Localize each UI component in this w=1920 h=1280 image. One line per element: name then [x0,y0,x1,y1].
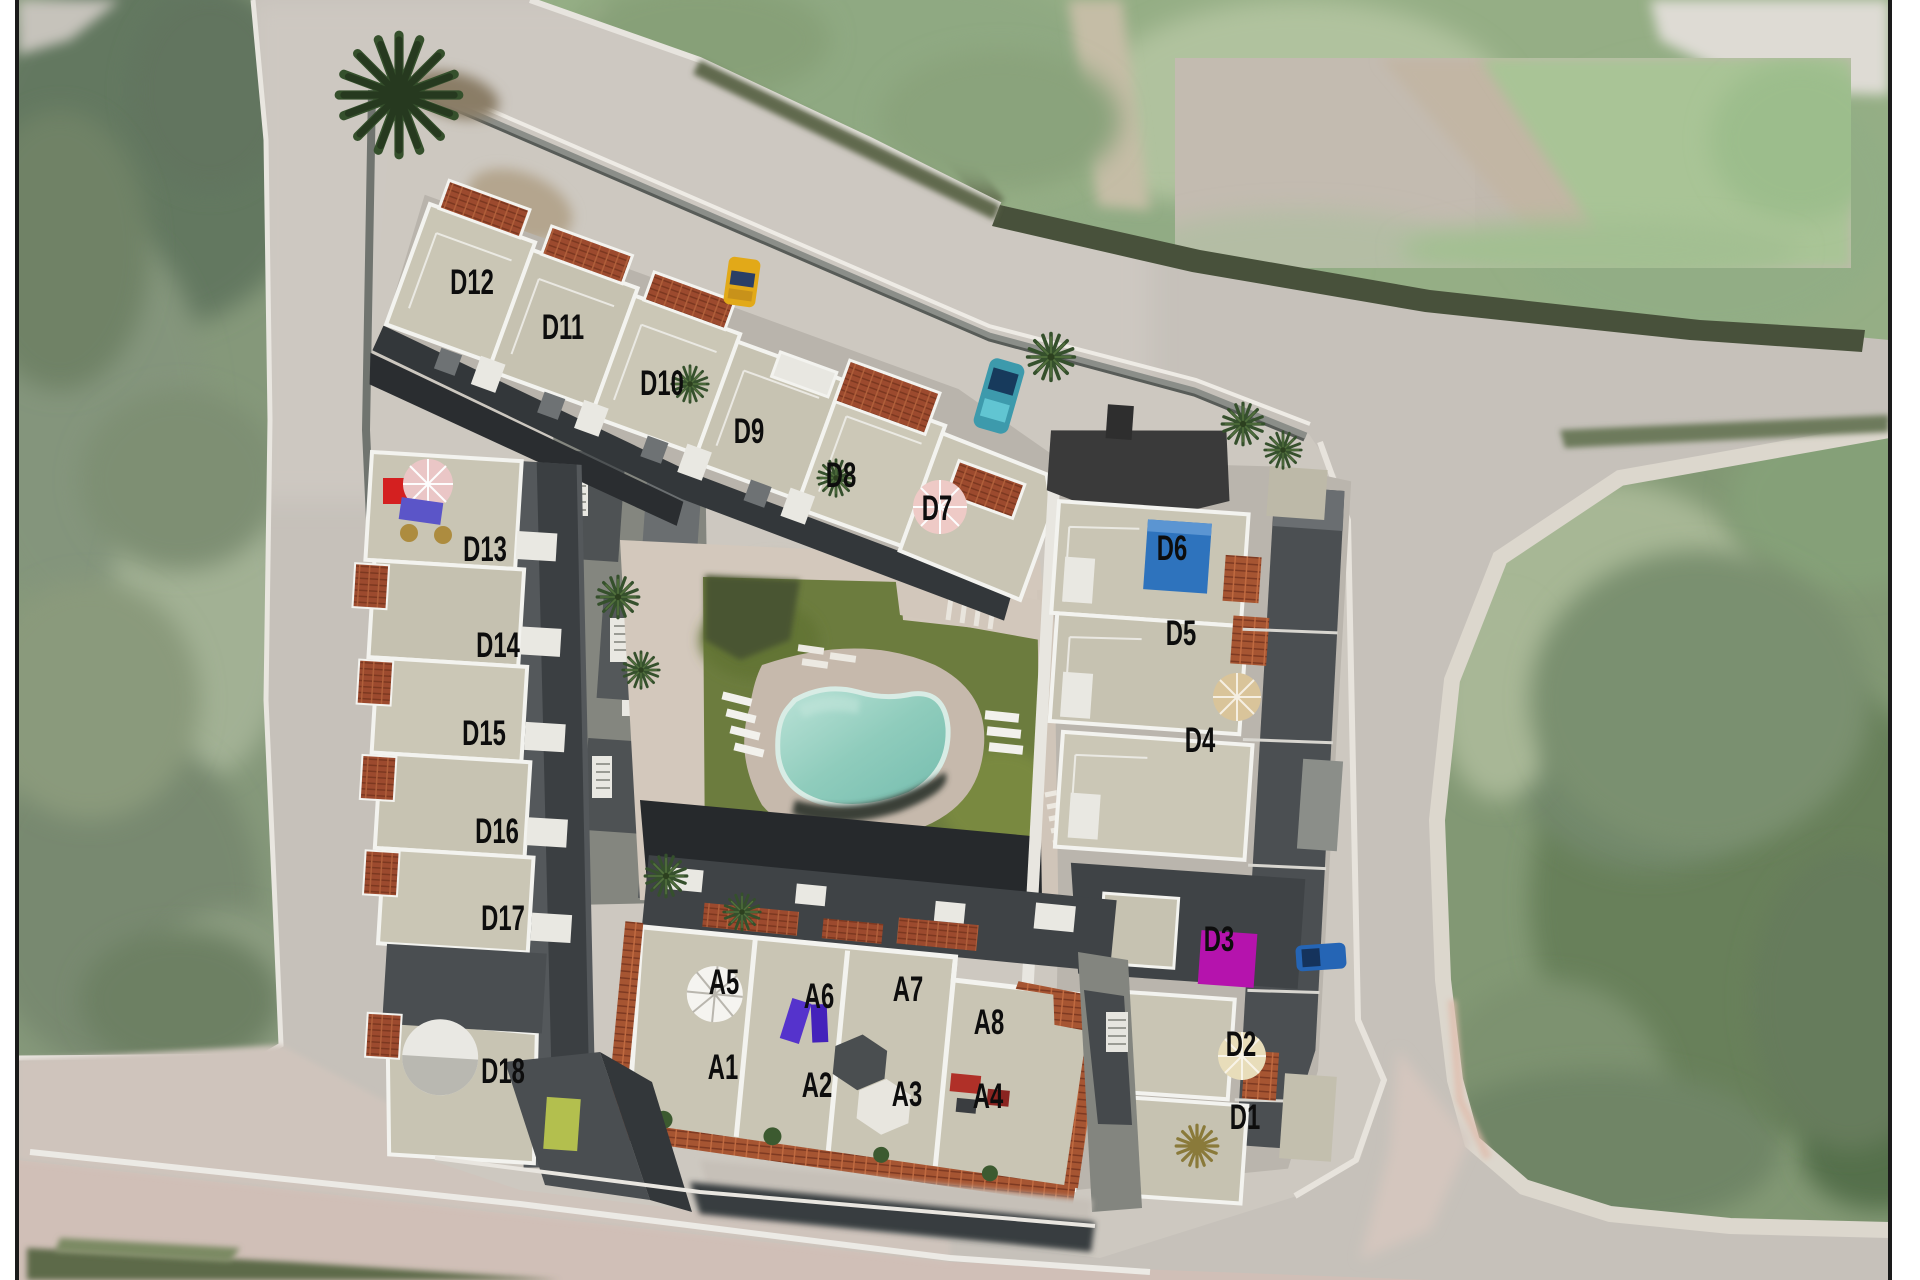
svg-text:D1: D1 [1230,1099,1260,1138]
svg-text:A8: A8 [974,1004,1004,1043]
svg-text:D15: D15 [462,715,506,754]
svg-text:D6: D6 [1157,530,1187,569]
svg-text:D14: D14 [476,627,520,666]
svg-text:D7: D7 [922,490,952,529]
svg-text:D2: D2 [1226,1026,1256,1065]
svg-text:A1: A1 [708,1049,738,1088]
svg-text:D17: D17 [481,900,525,939]
svg-text:D11: D11 [542,309,584,348]
svg-text:D16: D16 [475,813,519,852]
svg-text:A2: A2 [802,1067,832,1106]
svg-text:D9: D9 [734,413,764,452]
svg-text:D4: D4 [1185,722,1216,761]
svg-text:D8: D8 [826,457,856,496]
svg-text:D10: D10 [640,365,684,404]
svg-text:D3: D3 [1204,921,1234,960]
svg-text:A6: A6 [804,978,834,1017]
svg-text:D12: D12 [450,264,494,303]
svg-text:A7: A7 [893,971,923,1010]
svg-text:A3: A3 [892,1076,922,1115]
svg-text:D18: D18 [481,1053,525,1092]
svg-text:D5: D5 [1166,615,1196,654]
svg-text:A4: A4 [973,1078,1004,1117]
svg-text:A5: A5 [709,964,739,1003]
svg-text:D13: D13 [463,531,507,570]
